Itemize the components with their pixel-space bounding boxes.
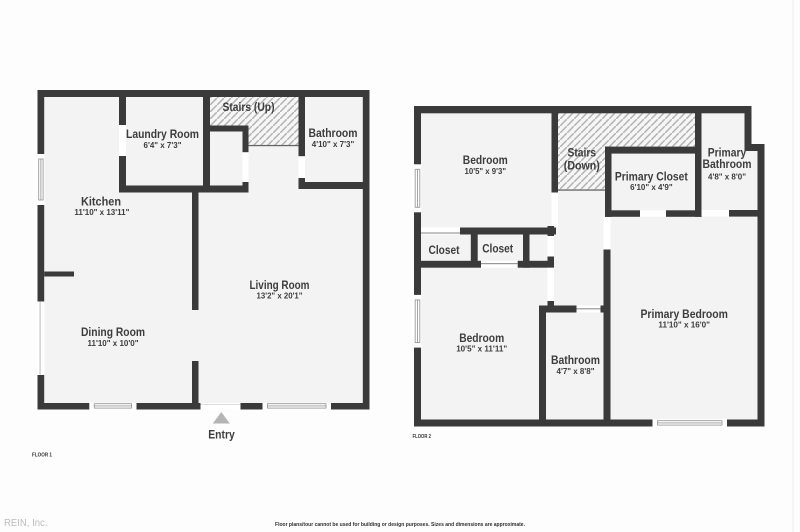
svg-text:4'7" x 8'8": 4'7" x 8'8" xyxy=(557,366,595,376)
svg-text:Stairs (Up): Stairs (Up) xyxy=(223,102,275,114)
svg-text:Floor plans/tour cannot be use: Floor plans/tour cannot be used for buil… xyxy=(275,522,526,528)
svg-text:4'8" x 8'0": 4'8" x 8'0" xyxy=(708,171,746,181)
svg-text:Closet: Closet xyxy=(482,243,513,255)
svg-text:Closet: Closet xyxy=(429,245,460,257)
svg-text:FLOOR 2: FLOOR 2 xyxy=(413,434,432,440)
svg-text:6'4" x 7'3": 6'4" x 7'3" xyxy=(144,140,182,150)
svg-text:(Down): (Down) xyxy=(564,161,600,173)
svg-text:11'10" x 10'0": 11'10" x 10'0" xyxy=(88,338,139,348)
svg-text:Bathroom: Bathroom xyxy=(703,159,752,171)
svg-text:11'10" x 13'11": 11'10" x 13'11" xyxy=(74,207,129,217)
svg-text:11'10" x 16'0": 11'10" x 16'0" xyxy=(658,319,710,329)
svg-text:Entry: Entry xyxy=(208,430,235,442)
svg-text:10'5" x 11'11": 10'5" x 11'11" xyxy=(456,344,507,354)
svg-text:10'5" x 9'3": 10'5" x 9'3" xyxy=(465,166,507,176)
svg-text:4'10" x 7'3": 4'10" x 7'3" xyxy=(312,139,355,149)
svg-text:6'10" x 4'9": 6'10" x 4'9" xyxy=(630,182,673,192)
svg-text:FLOOR 1: FLOOR 1 xyxy=(32,453,52,459)
svg-text:13'2" x 20'1": 13'2" x 20'1" xyxy=(257,291,303,301)
svg-text:REIN, Inc.: REIN, Inc. xyxy=(4,518,48,529)
svg-text:Primary: Primary xyxy=(708,147,747,159)
svg-text:Stairs: Stairs xyxy=(568,147,597,159)
